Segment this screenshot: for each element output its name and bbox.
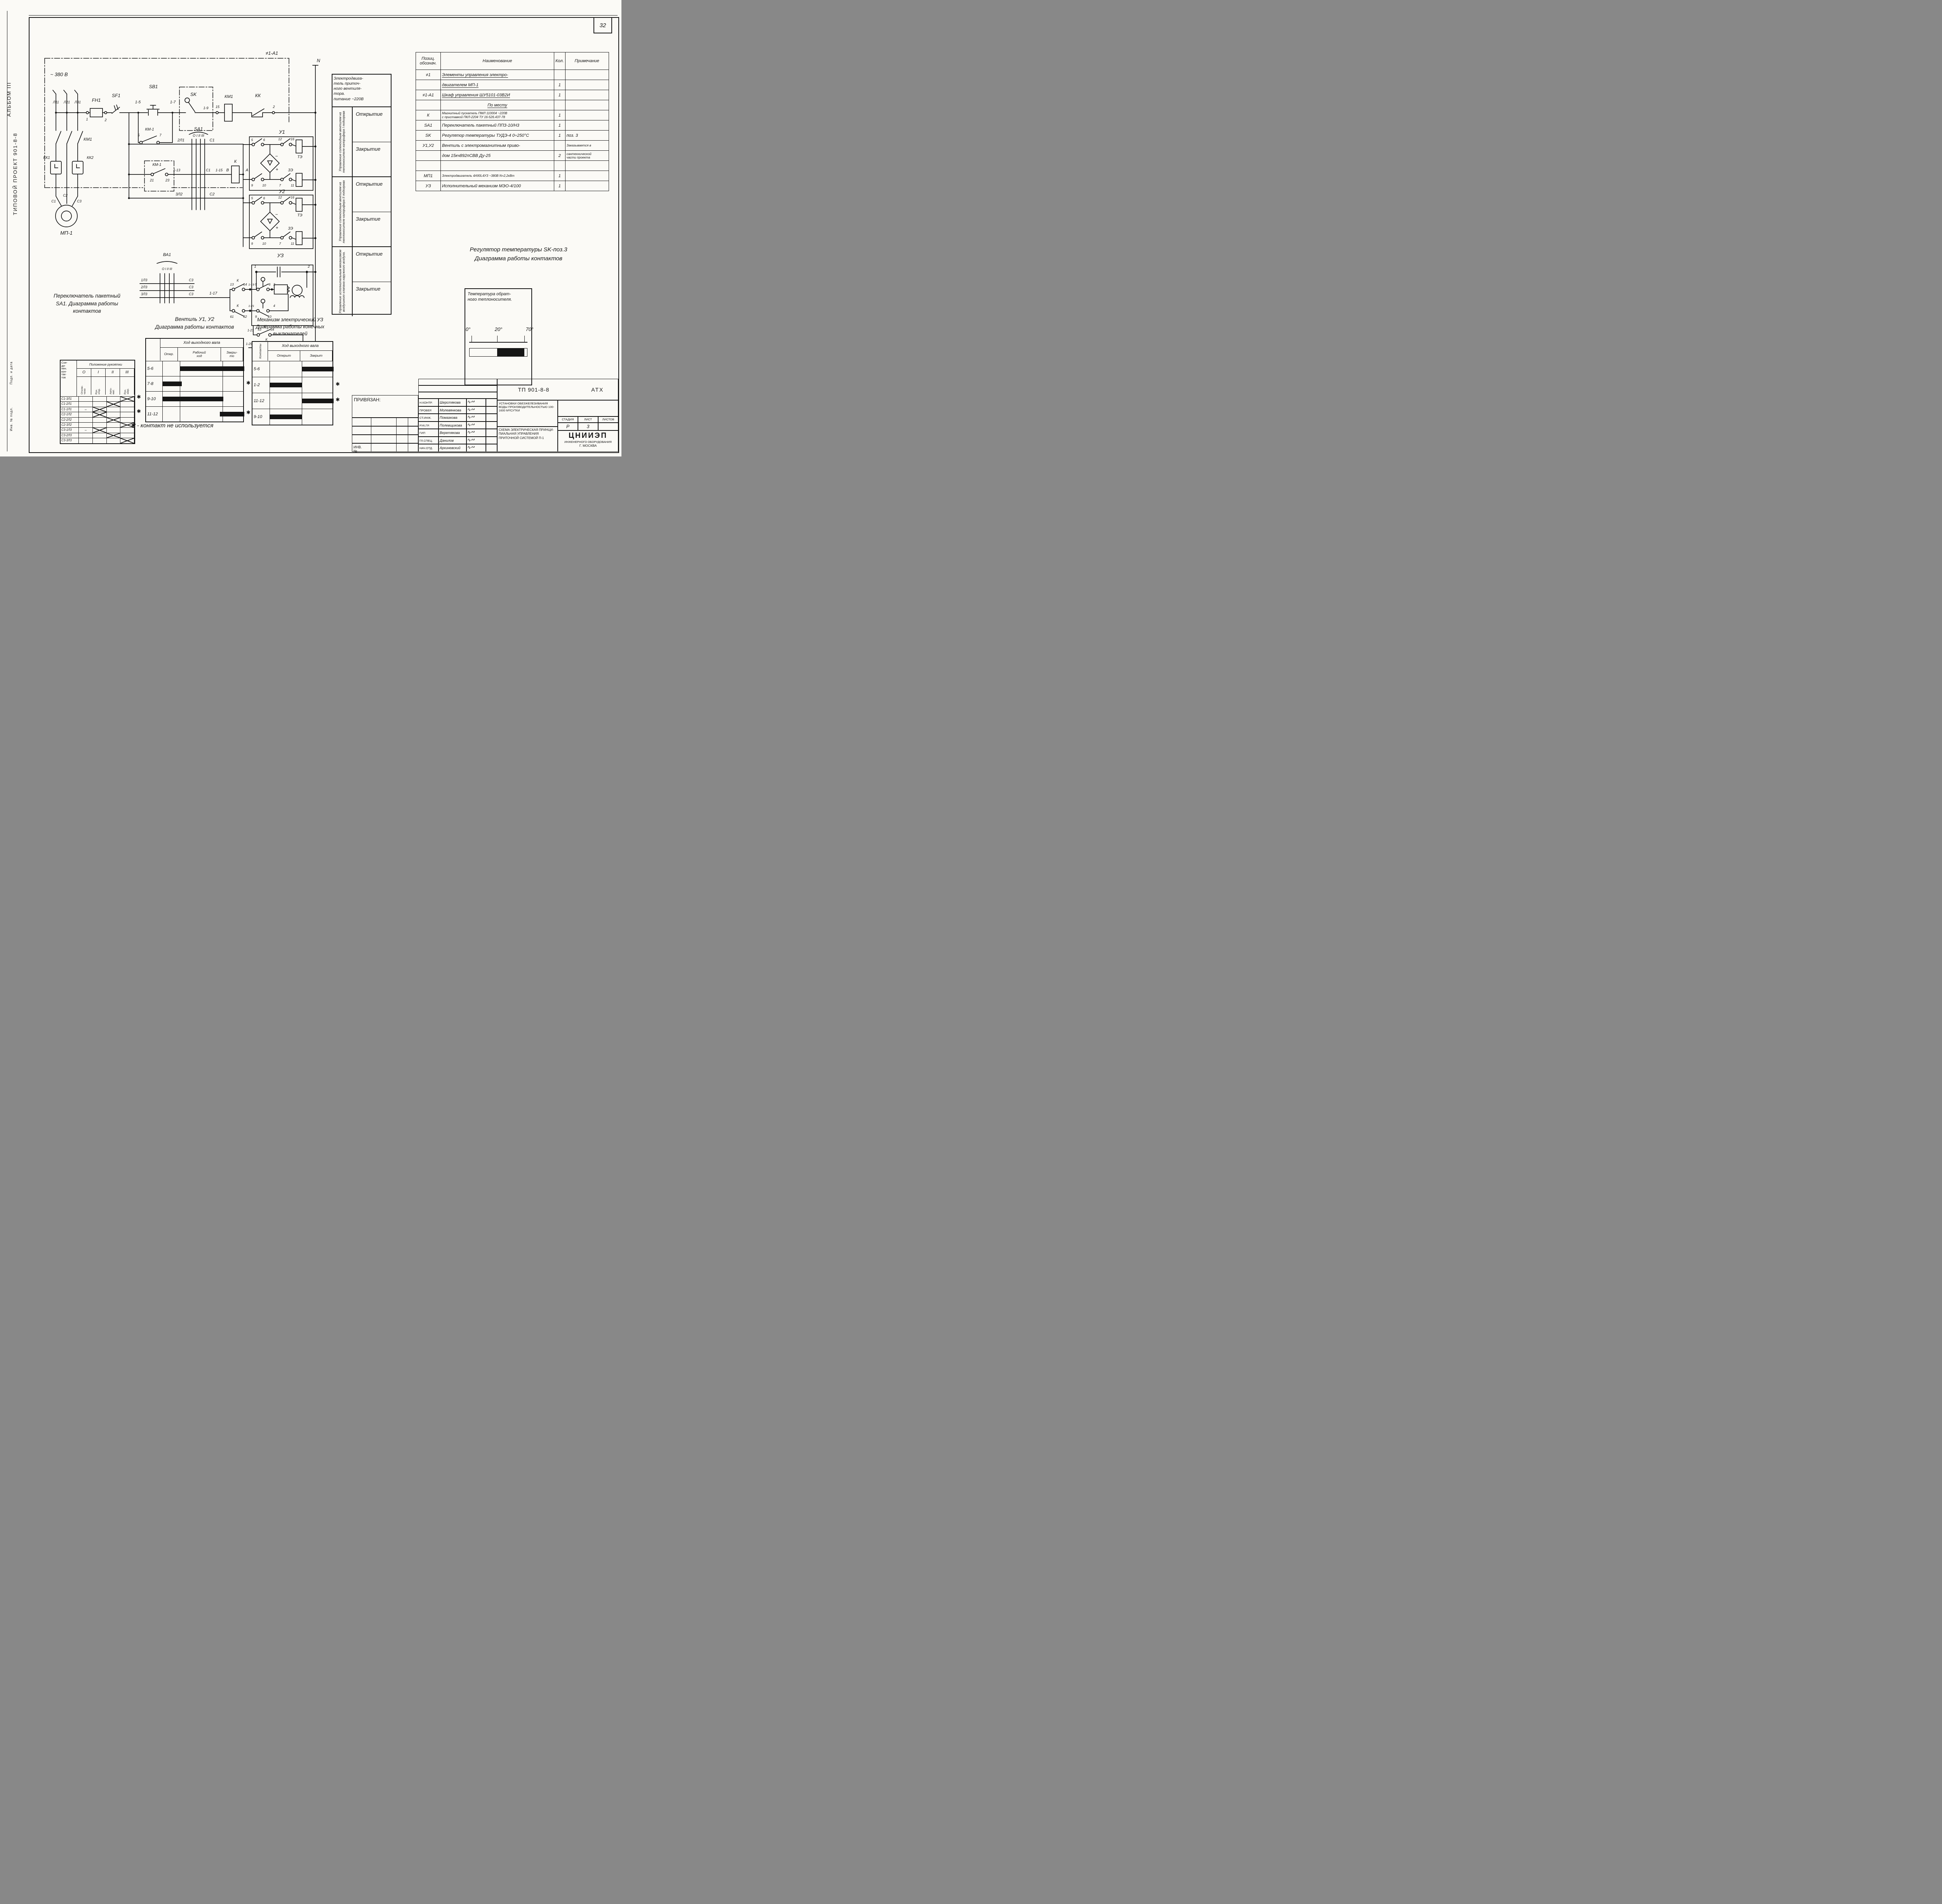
- sk-diagram-title: Регулятор температуры SK-поз.3 Диаграмма…: [427, 246, 610, 263]
- sa1-mark-cell: [107, 423, 121, 427]
- stage-value: Р: [558, 423, 578, 430]
- wire-label: У2: [278, 188, 285, 194]
- sa1-mark-cell: [79, 412, 93, 417]
- sk-tick-line: [472, 336, 472, 342]
- wire-label: Л31: [74, 100, 81, 104]
- component-qty: 1: [554, 120, 566, 131]
- component-qty: 1: [554, 171, 566, 181]
- valve-u1-block: [249, 137, 315, 190]
- sa1-mark-cell: [107, 397, 121, 401]
- sa1-mark-cell: [120, 407, 134, 412]
- sa1-mark-cell: [120, 433, 134, 438]
- motor-inner-circle: [61, 211, 71, 221]
- sa1-mark-cell: [79, 423, 93, 427]
- valve-row-label: 9-10: [146, 392, 163, 406]
- uz-header: Ход выходного вала: [268, 342, 332, 351]
- component-note: поз. 3: [565, 131, 609, 141]
- valve-row: 11-12: [146, 406, 243, 422]
- wire-label: К: [237, 279, 239, 282]
- sa1-contact-table: Сое- ди- нен. кон- так- товПоложение рук…: [60, 360, 135, 444]
- sa1-mark-cell: [107, 428, 121, 432]
- sk-contact-bar: [469, 348, 527, 357]
- sig-signature: ∿∾: [466, 422, 486, 429]
- sa1-table-title: Переключатель пакетный SA1. Диаграмма ра…: [33, 292, 141, 315]
- component-pos: SA1: [416, 120, 441, 131]
- component-qty: 1: [554, 80, 566, 90]
- component-pos: [416, 80, 441, 90]
- component-qty: [554, 141, 566, 151]
- uz-col: Закрыт: [300, 351, 332, 361]
- sig-signature: ∿∾: [466, 437, 486, 444]
- sa1-mark-cell: [79, 418, 93, 422]
- wire-label: 2: [272, 105, 275, 109]
- revision-grid-row: [418, 392, 497, 399]
- motor-panel-title: Электродвига- тель приточ- ного вентиля-…: [332, 75, 391, 107]
- wire-label: КМ1: [224, 94, 233, 99]
- sa1-position-caption: Авто- мат.: [106, 377, 120, 395]
- sa1-mark-cell: [93, 407, 107, 412]
- component-pos: К: [416, 110, 441, 120]
- component-pos: МП1: [416, 171, 441, 181]
- sheet-title-cell: Схема электрическая принци- пиальная упр…: [497, 427, 558, 452]
- sa1-mark-cell: [107, 407, 121, 412]
- contact-closed-mark: [107, 418, 120, 422]
- sa1-position-caption: Руч. откр.: [91, 377, 106, 395]
- wire-label: ЗЭ: [288, 168, 293, 172]
- sk-tick-label: 70°: [526, 326, 534, 332]
- contact-closed-mark: [93, 407, 106, 412]
- component-name: двигателем МП-1: [441, 80, 554, 90]
- motor-panel-caption: Управление соленоидным вентилем на тепло…: [332, 107, 353, 176]
- wire-label: С3: [77, 199, 82, 203]
- wire-label: 5: [137, 133, 140, 137]
- component-pos: SK: [416, 131, 441, 141]
- wire-label: В: [226, 168, 229, 172]
- valve-row-label: 7-8: [146, 376, 163, 391]
- sa1-row: С3-3Л3: [61, 438, 134, 443]
- sa1-position-caption: Отклю- чено: [77, 377, 91, 395]
- sa1-position-caption: Руч. закр.: [120, 377, 134, 395]
- wire-label: SA1: [194, 126, 203, 132]
- sa1-position: II: [106, 369, 120, 376]
- signature-scribble: ∿∾: [466, 444, 475, 450]
- motor-panel-cell: Закрытие: [353, 282, 391, 317]
- privyazan-grid-row: [352, 426, 418, 435]
- contact-closed-bar: [180, 366, 244, 371]
- uz-table-title: Механизм электрический УЗ Диаграмма рабо…: [238, 316, 343, 337]
- component-note: [565, 100, 609, 110]
- contact-closed-mark: [107, 402, 120, 406]
- contact-closed-bar: [220, 412, 244, 416]
- org-city: г. Москва: [558, 444, 618, 448]
- sa1-header: Положение рукоятки: [77, 361, 134, 369]
- sa1-row-label: С1-2Л1: [61, 402, 79, 406]
- sa1-position: III: [120, 369, 134, 376]
- component-name: Вентиль с электромагнитным приво-: [441, 141, 554, 151]
- uz-corner: Контакты: [252, 342, 268, 361]
- sig-date: [486, 444, 497, 452]
- wire-label: ~ 380 В: [50, 71, 68, 77]
- components-header: Примечание: [565, 52, 609, 70]
- wire-label: 12: [278, 195, 282, 199]
- component-name: Регулятор температуры ТУДЭ-4 0÷250°С: [441, 131, 554, 141]
- motor-panel-cells: ОткрытиеЗакрытие: [353, 177, 391, 246]
- sa1-mark-cell: [120, 397, 134, 401]
- wire-label: КК2: [87, 156, 94, 160]
- component-qty: [554, 161, 566, 171]
- wire-label: ТЭ: [298, 213, 303, 218]
- privyazan-grid-row: [352, 443, 418, 452]
- stage-header: Листов: [598, 416, 618, 423]
- contact-closed-mark: [120, 397, 134, 401]
- wire-label: Л21: [63, 100, 70, 104]
- wire-label: 23: [165, 178, 169, 182]
- wire-label: SK: [190, 92, 197, 97]
- component-qty: 2: [554, 151, 566, 161]
- motor-panel-cells: ОткрытиеЗакрытие: [353, 247, 391, 316]
- sk-diagram-caption: Температура обрат- ного теплоносителя.: [465, 289, 531, 303]
- wire-label: 1-17: [209, 291, 217, 296]
- kk2-hook: [77, 164, 80, 168]
- sig-signature: ∿∾: [466, 414, 486, 422]
- component-pos: ≠1-А1: [416, 90, 441, 100]
- component-note: [565, 171, 609, 181]
- component-pos: [416, 100, 441, 110]
- wire-label: 10: [262, 183, 266, 187]
- cabinet-boundary: [45, 58, 289, 191]
- uz-row-label: 11-12: [252, 393, 270, 409]
- motor-panel-cells: ОткрытиеЗакрытие: [353, 107, 391, 176]
- uz-row-label: 1-2: [252, 377, 270, 393]
- component-note: [565, 120, 609, 131]
- sk-closed-segment: [497, 348, 524, 357]
- components-row: КМагнитный пускатель ПМЛ 110004 ~220В с …: [416, 110, 609, 120]
- sa1-mark-cell: [93, 433, 107, 438]
- sig-role: Рук.гр.: [418, 422, 439, 429]
- wire-label: О I II III: [162, 267, 172, 271]
- valve-band: [163, 361, 243, 376]
- signature-scribble: ∿∾: [466, 437, 475, 443]
- contact-closed-mark: [120, 438, 134, 443]
- wire-label: −: [275, 153, 278, 159]
- sig-date: [486, 422, 497, 429]
- va1-switch: [140, 261, 230, 303]
- wire-label: ТЭ: [298, 155, 303, 159]
- motor-panel-caption-text: Управление соленоидным вентилем на тепло…: [339, 108, 346, 175]
- sa1-row: С2-2Л2: [61, 417, 134, 422]
- components-row: УЗИсполнительный механизм МЭО-4/1001: [416, 181, 609, 191]
- sa1-mark-cell: [79, 438, 93, 443]
- sk-axis: [469, 342, 527, 343]
- wire-label: 2: [307, 265, 310, 268]
- sk-tick-label: 0°: [466, 326, 470, 332]
- valve-contact-table: Ход выходного валаОткр.Рабочий ходЗакры-…: [145, 338, 244, 422]
- wire-label: 6: [263, 196, 265, 200]
- sa1-mark-cell: [93, 402, 107, 406]
- wire-label: 7: [279, 242, 281, 246]
- wire-label: 2Л1: [177, 138, 184, 143]
- motor-panel-caption-text: Управление соленоидным вентилем на тепло…: [339, 178, 346, 245]
- sa1-mark-cell: [107, 402, 121, 406]
- wire-label: 1: [254, 265, 256, 268]
- component-note: Заказывается в: [565, 141, 609, 151]
- motor-panel-cell: Открытие: [353, 247, 391, 282]
- org-subtitle: инженерного оборудования: [558, 440, 618, 444]
- wire-label: 1-19: [248, 283, 254, 286]
- motor-panel-cell: Закрытие: [353, 142, 391, 177]
- wire-label: МП-1: [60, 230, 73, 236]
- sig-role: Провер.: [418, 406, 439, 414]
- sa1-row-label: С1-3Л1: [61, 397, 79, 401]
- wire-label: 13: [230, 282, 234, 286]
- middle-rows: [129, 113, 252, 247]
- drawing-sheet: 32 АЛЬБОМ III ТИПОВОЙ ПРОЕКТ 901-8-8 Под…: [0, 0, 621, 456]
- sk-diagram-box: Температура обрат- ного теплоносителя. 0…: [465, 288, 532, 385]
- wire-label: 1-9: [203, 106, 208, 110]
- sig-date: [486, 437, 497, 444]
- components-header: Кол.: [554, 52, 566, 70]
- uz-band: [270, 377, 332, 393]
- component-name: Шкаф управления ШУ5101-03В2И: [441, 90, 554, 100]
- wire-label: КК1: [43, 156, 50, 160]
- wire-label: 10: [262, 242, 266, 246]
- wire-label: УЗ: [277, 253, 284, 258]
- sa1-mark-cell: [93, 418, 107, 422]
- kk1-hook: [55, 164, 58, 168]
- valve-header: Ход выходного вала: [160, 339, 243, 348]
- sa1-row-label: С3-2Л3: [61, 433, 79, 438]
- object-name-cell: Установки обезжелезивания воды производи…: [497, 400, 558, 427]
- sa1-row: С3-1Л3–: [61, 427, 134, 432]
- wire-label: +: [275, 167, 278, 172]
- wire-label: ≠1-А1: [266, 51, 278, 56]
- sig-date: [486, 399, 497, 406]
- component-name: По месту: [441, 100, 554, 110]
- sig-date: [486, 406, 497, 414]
- valve-row: 9-10: [146, 391, 243, 406]
- sig-name: Веретякова: [439, 429, 466, 437]
- component-name: [441, 161, 554, 171]
- sa1-mark-cell: [107, 412, 121, 417]
- wire-label: 6: [263, 138, 265, 142]
- component-qty: 1: [554, 90, 566, 100]
- privyazan-grid-row: [352, 418, 418, 426]
- component-pos: УЗ: [416, 181, 441, 191]
- sa1-mark-cell: [107, 418, 121, 422]
- sa1-row: С2-3Л2: [61, 422, 134, 427]
- unused-contact-star: ✱: [137, 408, 141, 415]
- sig-date: [486, 429, 497, 437]
- component-name: дом 15кч892пСВВ Ду-25: [441, 151, 554, 161]
- contact-closed-bar: [270, 415, 302, 419]
- components-table: Позиц. обознач.НаименованиеКол.Примечани…: [416, 52, 609, 191]
- wire-label: С1: [210, 138, 215, 143]
- wire-label: КК: [255, 93, 261, 98]
- wire-label: 16: [291, 137, 294, 141]
- phase-lines: [53, 90, 83, 206]
- valve-u2-block: [249, 195, 315, 249]
- sa1-mark-cell: [120, 412, 134, 417]
- wire-label: 7: [159, 133, 162, 137]
- wire-label: КМ1: [84, 137, 92, 142]
- sig-name: Полевщикова: [439, 422, 466, 429]
- valve-corner: [146, 339, 160, 361]
- wire-label: С2: [210, 192, 215, 197]
- components-row: [416, 161, 609, 171]
- component-pos: [416, 151, 441, 161]
- wire-label: С3: [189, 278, 193, 282]
- component-qty: 1: [554, 110, 566, 120]
- wire-label: FH1: [92, 98, 101, 103]
- component-note: сантехнической части проекта: [565, 151, 609, 161]
- components-row: дом 15кч892пСВВ Ду-252сантехнической час…: [416, 151, 609, 161]
- wire-label: N: [317, 58, 320, 63]
- doc-number: ТП 901-8-8: [498, 379, 570, 400]
- sig-signature: ∿∾: [466, 406, 486, 414]
- sk-tick-line: [497, 336, 498, 342]
- wire-label: 5: [251, 138, 253, 142]
- motor-panel-caption-text: Управление исполнительным механизмом воз…: [339, 248, 346, 315]
- sa1-position: I: [91, 369, 106, 376]
- wire-label: 5: [255, 282, 257, 286]
- wire-label: 9: [251, 183, 253, 187]
- motor-circle: [56, 205, 77, 227]
- sa1-mark-cell: [107, 438, 121, 443]
- valve-row: 7-8: [146, 376, 243, 391]
- component-name: Магнитный пускатель ПМЛ 110004 ~220В с п…: [441, 110, 554, 120]
- wire-label: КМ-1: [145, 127, 154, 132]
- valve-band: [163, 376, 243, 391]
- signature-scribble: ∿∾: [466, 422, 475, 428]
- sig-date: [486, 414, 497, 422]
- neutral-line: [313, 65, 318, 348]
- uz-band: [270, 361, 332, 377]
- sa1-mark-cell: –: [79, 407, 93, 412]
- wire-label: 11: [291, 183, 294, 187]
- valve-col: Откр.: [160, 348, 178, 361]
- wire-label: 5: [251, 196, 253, 200]
- component-note: [565, 161, 609, 171]
- revision-grid-row: [418, 379, 497, 385]
- wire-label: С1: [206, 168, 211, 172]
- sa1-row-label: С3-3Л3: [61, 438, 79, 443]
- sig-name: Данилов: [439, 437, 466, 444]
- wire-label: +: [275, 225, 278, 230]
- sa1-row-label: С3-1Л3: [61, 428, 79, 432]
- components-row: SKРегулятор температуры ТУДЭ-4 0÷250°С1п…: [416, 131, 609, 141]
- sig-name: Шерстякова: [439, 399, 466, 406]
- wire-label: С2: [63, 193, 68, 197]
- sig-role: Гл.спец.: [418, 437, 439, 444]
- stage-value: [598, 423, 618, 430]
- sig-name: Помазкова: [439, 414, 466, 422]
- unused-contact-star: ✱: [336, 397, 340, 403]
- sig-role: Ст.инж.: [418, 414, 439, 422]
- component-note: [565, 70, 609, 80]
- sa1-mark-cell: [120, 438, 134, 443]
- components-row: У1,У2Вентиль с электромагнитным приво-За…: [416, 141, 609, 151]
- component-note: [565, 90, 609, 100]
- wire-label: 16: [291, 195, 294, 199]
- wire-label: 1Л3: [141, 278, 147, 282]
- stage-header: Стадия: [558, 416, 578, 423]
- sa1-mark-cell: [93, 438, 107, 443]
- stage-value: 3: [578, 423, 598, 430]
- sa1-row: С3-2Л3: [61, 433, 134, 438]
- contact-closed-bar: [302, 399, 334, 403]
- sa1-mark-cell: [79, 402, 93, 406]
- sa1-mark-cell: [93, 412, 107, 417]
- uz-row: 11-12: [252, 393, 332, 409]
- unused-contact-star: ✱: [246, 380, 251, 386]
- sa1-mark-cell: [107, 433, 121, 438]
- wire-label: −: [275, 212, 278, 217]
- valve-row: 5-6: [146, 361, 243, 376]
- wire-label: 3Л2: [176, 192, 183, 197]
- valve-band: [163, 407, 243, 422]
- wire-label: 1-5: [135, 100, 141, 105]
- component-pos: У1,У2: [416, 141, 441, 151]
- contact-closed-bar: [163, 397, 223, 401]
- sa1-mark-cell: –: [79, 428, 93, 432]
- doc-code: АТХ: [577, 379, 618, 400]
- motor-panel-caption: Управление соленоидным вентилем на тепло…: [332, 177, 353, 246]
- wire-label: 2Л3: [141, 285, 147, 289]
- motor-panel-caption: Управление исполнительным механизмом воз…: [332, 247, 353, 316]
- sa1-mark-cell: [93, 397, 107, 401]
- contact-closed-bar: [302, 367, 334, 371]
- contact-closed-bar: [163, 381, 181, 386]
- sa1-row: С1-1Л1–: [61, 407, 134, 412]
- wire-label: 15: [216, 105, 220, 109]
- sa1-row: С1-2Л1: [61, 401, 134, 406]
- doc-number-row: ТП 901-8-8АТХ: [497, 379, 618, 400]
- sig-signature: ∿∾: [466, 429, 486, 437]
- wire-label: 1-13: [173, 168, 180, 172]
- signature-scribble: ∿∾: [466, 406, 475, 413]
- wire-label: 7: [279, 183, 281, 187]
- sa1-mark-cell: [93, 423, 107, 427]
- sa1-mark-cell: [93, 428, 107, 432]
- motor-panel-section-1: Управление соленоидным вентилем на тепло…: [332, 107, 391, 177]
- wire-label: 21: [150, 178, 154, 182]
- valve-row-label: 11-12: [146, 407, 163, 422]
- wire-label: К: [237, 304, 239, 308]
- wire-label: 3Л3: [141, 292, 147, 296]
- sk-tick-line: [524, 336, 525, 342]
- components-row: МП1Электродвигатель 4А90L4УЗ ~380В N=2,2…: [416, 171, 609, 181]
- sig-role: Нач.отд.: [418, 444, 439, 452]
- privyazan-cell: Привязан:: [352, 395, 418, 418]
- sa1-mark-cell: [79, 397, 93, 401]
- org-cell: ЦНИИЭПинженерного оборудованияг. Москва: [558, 430, 618, 452]
- sa1-row: С2-1Л2: [61, 412, 134, 417]
- wire-label: 4: [273, 304, 275, 308]
- sig-name: Архиневский: [439, 444, 466, 452]
- unused-contact-star: ✱: [336, 381, 340, 387]
- signature-scribble: ∿∾: [466, 429, 475, 435]
- component-note: [565, 80, 609, 90]
- unused-contact-star: ✱: [137, 394, 141, 400]
- uz-col: Открыт: [268, 351, 300, 361]
- wire-label: У1: [278, 129, 285, 135]
- valve-row-label: 5-6: [146, 361, 163, 376]
- sig-role: Н.контр.: [418, 399, 439, 406]
- wire-label: А: [245, 168, 249, 172]
- wire-label: С3: [189, 292, 193, 296]
- components-row: ≠1-А1Шкаф управления ШУ5101-03В2И1: [416, 90, 609, 100]
- sa1-mark-cell: [79, 433, 93, 438]
